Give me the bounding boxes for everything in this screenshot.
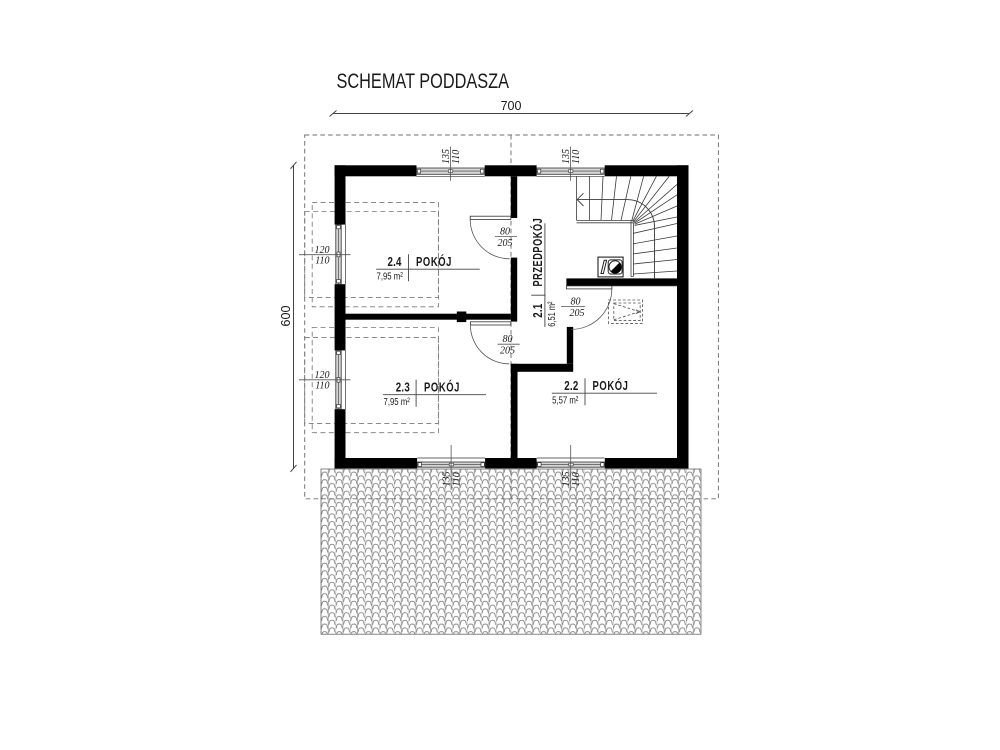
svg-text:2.4: 2.4: [388, 254, 403, 269]
svg-text:700: 700: [501, 99, 522, 113]
svg-text:2.2: 2.2: [564, 378, 578, 393]
svg-text:110: 110: [451, 472, 462, 486]
svg-text:110: 110: [315, 381, 329, 392]
svg-text:POKÓJ: POKÓJ: [416, 254, 452, 269]
svg-text:PRZEDPOKÓJ: PRZEDPOKÓJ: [530, 218, 545, 287]
svg-text:205: 205: [570, 308, 585, 319]
svg-text:6,51 m²: 6,51 m²: [546, 301, 558, 327]
svg-text:120: 120: [315, 245, 330, 256]
svg-text:80: 80: [500, 226, 510, 237]
svg-text:110: 110: [315, 256, 329, 267]
svg-text:110: 110: [451, 150, 462, 164]
svg-text:7,95 m²: 7,95 m²: [384, 396, 411, 408]
svg-text:80: 80: [503, 334, 513, 345]
svg-text:POKÓJ: POKÓJ: [593, 378, 629, 393]
svg-text:7,95 m²: 7,95 m²: [377, 270, 404, 282]
svg-text:205: 205: [500, 346, 515, 357]
svg-text:5,57 m²: 5,57 m²: [552, 394, 579, 406]
svg-text:POKÓJ: POKÓJ: [424, 380, 460, 395]
svg-text:80: 80: [571, 296, 581, 307]
svg-text:120: 120: [315, 370, 330, 381]
svg-text:205: 205: [498, 238, 513, 249]
svg-text:2.1: 2.1: [530, 304, 545, 318]
svg-text:110: 110: [571, 472, 582, 486]
svg-text:110: 110: [571, 150, 582, 164]
svg-text:600: 600: [279, 306, 293, 327]
svg-text:SCHEMAT PODDASZA: SCHEMAT PODDASZA: [337, 69, 510, 93]
svg-text:2.3: 2.3: [396, 380, 410, 395]
